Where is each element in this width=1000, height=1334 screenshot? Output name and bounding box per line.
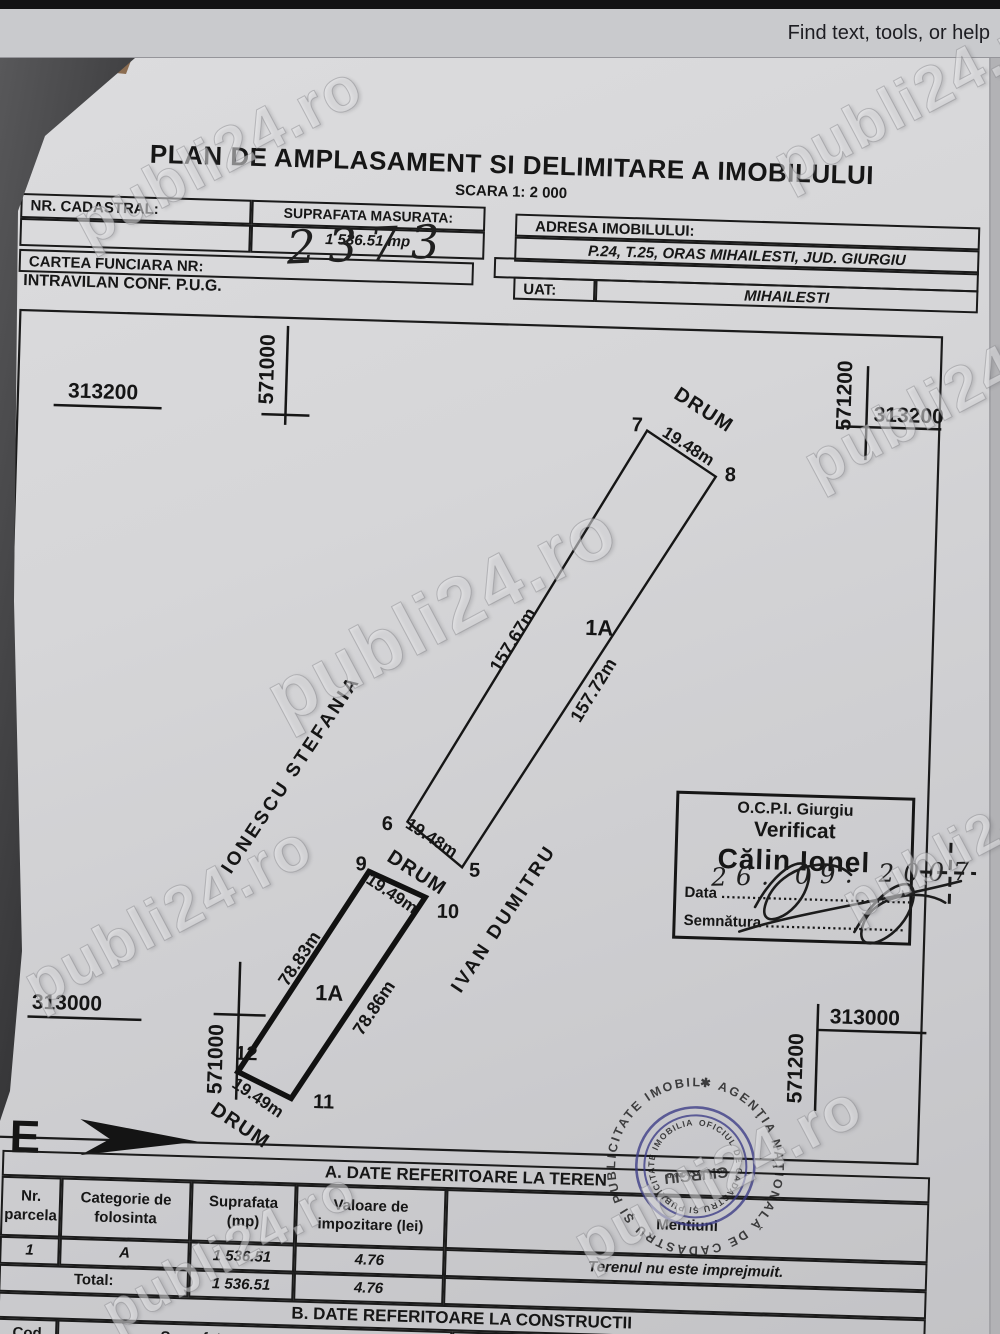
dim-top-end: 19.48m bbox=[659, 423, 718, 470]
grid-cross-ne-h bbox=[841, 426, 941, 429]
road-label-top: DRUM bbox=[670, 383, 737, 437]
road-label-bottom: DRUM bbox=[207, 1098, 274, 1153]
neighbor-right-label: IVAN DUMITRU bbox=[447, 841, 560, 996]
coord-label-se-north: 313000 bbox=[829, 1005, 900, 1030]
table-a-row-suprafata: 1 536.51 bbox=[189, 1241, 295, 1272]
pdf-viewer-window: Find text, tools, or help PLAN DE AMPLAS… bbox=[0, 0, 1000, 1334]
grid-cross-nw-h bbox=[261, 414, 309, 415]
point-5: 5 bbox=[469, 860, 481, 882]
coord-label-sw-north: 313000 bbox=[32, 991, 103, 1016]
dim-top-end-bottom: 19.48m bbox=[402, 814, 461, 861]
table-b-col-cod: Cod bbox=[0, 1318, 58, 1334]
point-7: 7 bbox=[631, 414, 643, 436]
point-10: 10 bbox=[436, 901, 459, 924]
coord-label-se-east: 571200 bbox=[783, 1033, 808, 1104]
coord-label-ne-north: 313200 bbox=[873, 403, 944, 428]
point-6: 6 bbox=[381, 813, 393, 835]
drawing-border bbox=[0, 310, 942, 1164]
point-8: 8 bbox=[725, 464, 737, 486]
handwritten-cadastral-number: 2373 bbox=[286, 214, 453, 275]
table-a-row-valoare: 4.76 bbox=[294, 1245, 445, 1277]
parcel-top-name: 1A bbox=[585, 615, 614, 641]
table-a-row-categorie: A bbox=[59, 1238, 190, 1270]
dim-top-side-right: 157.72m bbox=[566, 655, 620, 726]
grid-cross-nw-v bbox=[285, 326, 288, 425]
coord-underline-nw bbox=[54, 405, 162, 408]
semnatura-label: Semnătura bbox=[683, 912, 761, 931]
status-strip bbox=[0, 0, 1000, 9]
point-12: 12 bbox=[235, 1043, 258, 1066]
dim-top-side-left: 157.67m bbox=[486, 604, 540, 675]
grid-cross-se-v bbox=[815, 1004, 818, 1111]
table-a-col-valoare: Valoare de impozitare (lei) bbox=[295, 1185, 447, 1249]
road-label-mid: DRUM bbox=[383, 846, 450, 900]
coord-label-nw-north: 313200 bbox=[68, 379, 139, 404]
dim-bottom-side-left: 78.83m bbox=[274, 928, 325, 990]
point-11: 11 bbox=[313, 1091, 335, 1114]
dim-bottom-end-bottom: 19.49m bbox=[229, 1074, 288, 1122]
handwritten-date: 26. 09. 2007 bbox=[711, 857, 979, 892]
viewer-toolbar: Find text, tools, or help bbox=[0, 9, 1000, 58]
table-a-col-suprafata: Suprafata (mp) bbox=[190, 1181, 297, 1244]
uat-label-box: UAT: bbox=[513, 277, 596, 302]
dim-bottom-end-top: 19.49m bbox=[363, 870, 422, 918]
grid-cross-se-h bbox=[817, 1030, 926, 1033]
coord-label-ne-east: 571200 bbox=[832, 360, 857, 431]
document-photo: PLAN DE AMPLASAMENT SI DELIMITARE A IMOB… bbox=[0, 58, 1000, 1334]
table-a-col-nr: Nr. parcela bbox=[0, 1176, 62, 1238]
semnatura-row: Semnătura ........................... bbox=[683, 912, 908, 936]
semnatura-dots: ........................... bbox=[765, 914, 905, 935]
dim-bottom-side-right: 78.86m bbox=[349, 977, 400, 1039]
coord-underline-sw bbox=[27, 1016, 141, 1019]
coord-label-sw-east: 571000 bbox=[203, 1024, 228, 1095]
nr-cadastral-value-box bbox=[19, 218, 251, 253]
find-text-hint[interactable]: Find text, tools, or help bbox=[788, 9, 990, 57]
table-a-total-suprafata: 1 536.51 bbox=[188, 1269, 294, 1300]
table-a-total-valoare: 4.76 bbox=[293, 1273, 444, 1305]
table-a-row-nr: 1 bbox=[0, 1236, 60, 1266]
parcel-bottom-name: 1A bbox=[315, 980, 344, 1006]
neighbor-left-label: IONESCU STEFANIA bbox=[218, 671, 365, 877]
table-a-col-categorie: Categorie de folosinta bbox=[60, 1178, 192, 1242]
point-9: 9 bbox=[355, 853, 367, 875]
parcel-top-outline bbox=[406, 424, 717, 875]
parcel-bottom-outline bbox=[237, 868, 426, 1102]
grid-cross-sw-v bbox=[236, 962, 240, 1100]
grid-cross-ne-v bbox=[865, 366, 868, 460]
coord-label-nw-east: 571000 bbox=[255, 334, 280, 405]
grid-cross-sw-h bbox=[214, 1014, 266, 1016]
plan-document: PLAN DE AMPLASAMENT SI DELIMITARE A IMOB… bbox=[0, 58, 1000, 1334]
